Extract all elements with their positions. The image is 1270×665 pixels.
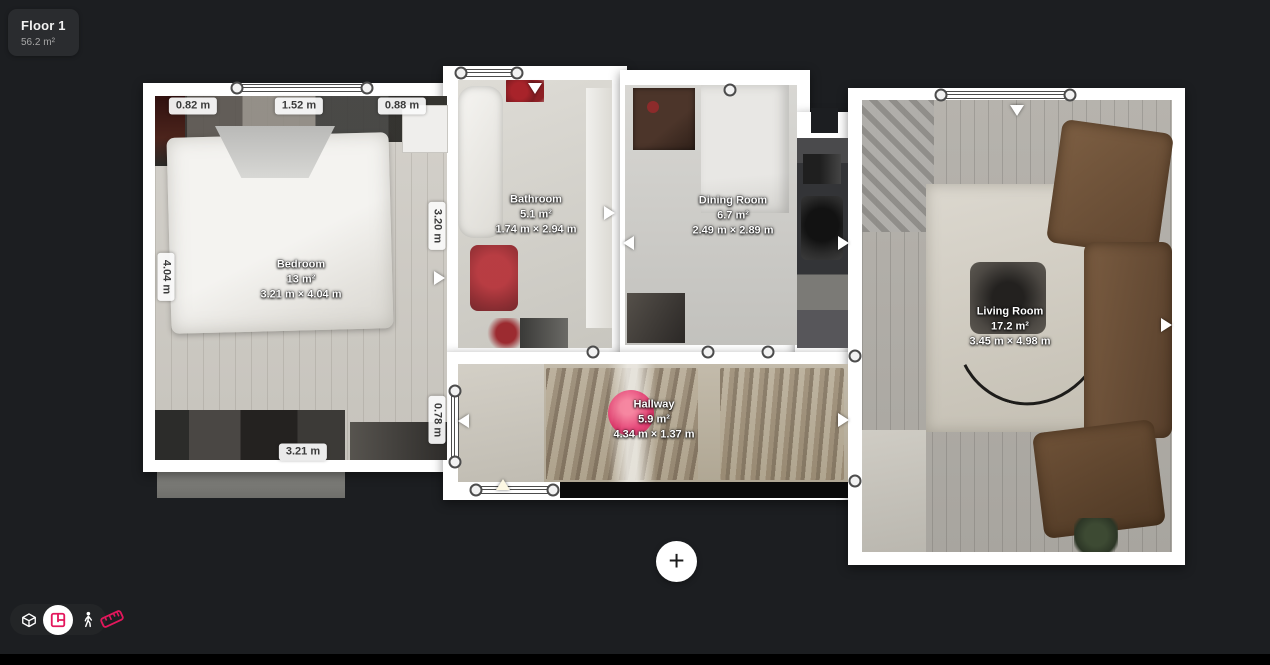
- living-plant: [1074, 518, 1118, 552]
- room-dimensions: 1.74 m × 2.94 m: [495, 222, 576, 237]
- measurement-chip[interactable]: 3.20 m: [429, 202, 446, 250]
- floor-area: 56.2 m²: [21, 37, 66, 48]
- window-handle[interactable]: [231, 82, 244, 95]
- living-sofa-top: [1046, 119, 1174, 257]
- wall-joint-handle[interactable]: [849, 350, 862, 363]
- room-name: Hallway: [613, 398, 694, 413]
- room-dimensions: 3.21 m × 4.04 m: [260, 287, 341, 302]
- floor-name: Floor 1: [21, 18, 66, 33]
- wall-arrow-right-icon[interactable]: [838, 413, 849, 427]
- dollhouse-icon: [19, 610, 39, 630]
- floor-selector[interactable]: Floor 1 56.2 m²: [8, 9, 79, 56]
- window-handle[interactable]: [511, 67, 524, 80]
- view-mode-toolbar: [10, 604, 106, 635]
- room-area: 5.9 m²: [613, 413, 694, 428]
- room-label-bedroom: Bedroom 13 m² 3.21 m × 4.04 m: [260, 258, 341, 303]
- kitchen-counter: [803, 154, 841, 184]
- room-area: 5.1 m²: [495, 208, 576, 223]
- room-label-bathroom: Bathroom 5.1 m² 1.74 m × 2.94 m: [495, 193, 576, 238]
- dining-table-decor: [647, 101, 659, 113]
- hallway-bottom-cutoff: [560, 482, 848, 498]
- room-name: Bedroom: [260, 258, 341, 273]
- wall-arrow-right-icon[interactable]: [838, 236, 849, 250]
- wall-notch: [811, 108, 838, 133]
- living-tile-corner: [862, 430, 926, 552]
- room-name: Bathroom: [495, 193, 576, 208]
- window-hallway-bottom[interactable]: [472, 486, 557, 494]
- dining-sideboard: [627, 293, 685, 343]
- window-handle[interactable]: [935, 89, 948, 102]
- wall-arrow-left-icon[interactable]: [623, 236, 634, 250]
- measurement-chip[interactable]: 0.88 m: [378, 98, 426, 115]
- room-dimensions: 3.45 m × 4.98 m: [969, 334, 1050, 349]
- wall-joint-handle[interactable]: [702, 346, 715, 359]
- window-handle[interactable]: [455, 67, 468, 80]
- room-label-dining-room: Dining Room 6.7 m² 2.49 m × 2.89 m: [692, 194, 773, 239]
- bathroom-dark-item: [520, 318, 568, 348]
- measurement-chip[interactable]: 1.52 m: [275, 98, 323, 115]
- room-label-living-room: Living Room 17.2 m² 3.45 m × 4.98 m: [969, 305, 1050, 350]
- window-handle[interactable]: [361, 82, 374, 95]
- window-handle[interactable]: [547, 484, 560, 497]
- floorplan-canvas[interactable]: 0.82 m 1.52 m 0.88 m 4.04 m 3.20 m 0.78 …: [0, 0, 1270, 665]
- wall-joint-handle[interactable]: [724, 84, 737, 97]
- room-area: 17.2 m²: [969, 320, 1050, 335]
- room-name: Living Room: [969, 305, 1050, 320]
- living-shelf: [862, 100, 934, 232]
- measurement-chip[interactable]: 0.78 m: [429, 396, 446, 444]
- floorplan-icon: [48, 610, 68, 630]
- wall-arrow-right-icon[interactable]: [1161, 318, 1172, 332]
- room-name: Dining Room: [692, 194, 773, 209]
- add-button[interactable]: +: [656, 541, 697, 582]
- room-dimensions: 4.34 m × 1.37 m: [613, 427, 694, 442]
- hallway-marble-band-right: [720, 368, 844, 480]
- window-handle[interactable]: [470, 484, 483, 497]
- room-area: 13 m²: [260, 273, 341, 288]
- window-living-top[interactable]: [937, 91, 1074, 99]
- window-handle[interactable]: [449, 456, 462, 469]
- room-dimensions: 2.49 m × 2.89 m: [692, 223, 773, 238]
- wall-arrow-right-icon[interactable]: [434, 271, 445, 285]
- wall-joint-handle[interactable]: [587, 346, 600, 359]
- room-label-hallway: Hallway 5.9 m² 4.34 m × 1.37 m: [613, 398, 694, 443]
- kitchen-stove: [801, 196, 843, 260]
- wall-joint-handle[interactable]: [849, 475, 862, 488]
- bottom-bar: [0, 654, 1270, 665]
- living-sofa-right: [1084, 242, 1172, 438]
- wall-arrow-down-icon[interactable]: [1010, 105, 1024, 116]
- dollhouse-view-button[interactable]: [15, 606, 42, 633]
- wall-joint-handle[interactable]: [762, 346, 775, 359]
- bathroom-red-rug: [470, 245, 518, 311]
- wall-arrow-left-icon[interactable]: [458, 414, 469, 428]
- measure-tape-icon: [98, 607, 127, 632]
- measurement-chip[interactable]: 0.82 m: [169, 98, 217, 115]
- window-handle[interactable]: [1064, 89, 1077, 102]
- wall-arrow-right-icon[interactable]: [604, 206, 615, 220]
- floorplan-view-button[interactable]: [43, 605, 73, 635]
- wall-arrow-up-icon[interactable]: [496, 479, 510, 490]
- measurement-chip[interactable]: 4.04 m: [158, 253, 175, 301]
- window-handle[interactable]: [449, 385, 462, 398]
- wall-arrow-down-icon[interactable]: [528, 83, 542, 94]
- measurement-chip[interactable]: 3.21 m: [279, 444, 327, 461]
- room-area: 6.7 m²: [692, 209, 773, 224]
- hallway-tile-left: [458, 364, 544, 482]
- plus-icon: +: [668, 547, 684, 575]
- dining-table: [633, 88, 695, 150]
- window-bedroom-top[interactable]: [232, 84, 372, 92]
